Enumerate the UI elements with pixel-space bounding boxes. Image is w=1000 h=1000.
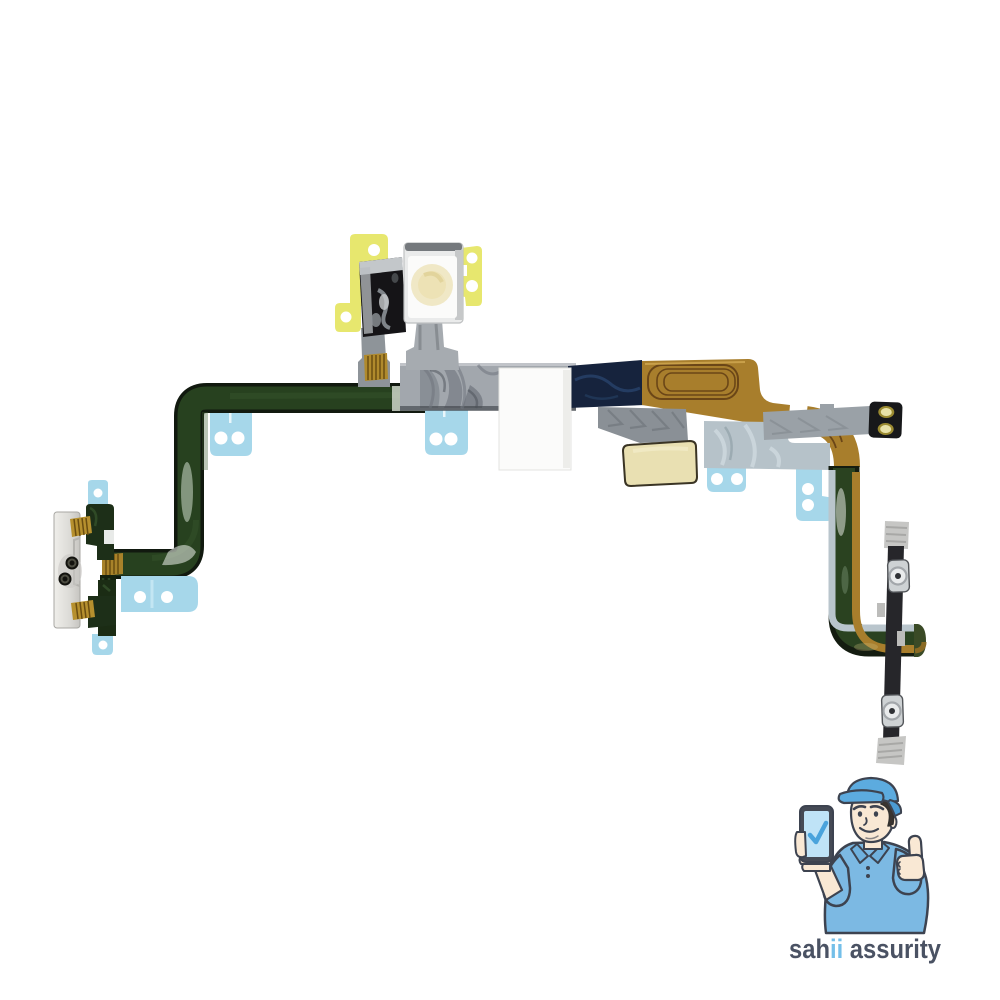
svg-text:sahii assurity: sahii assurity [789,934,941,964]
